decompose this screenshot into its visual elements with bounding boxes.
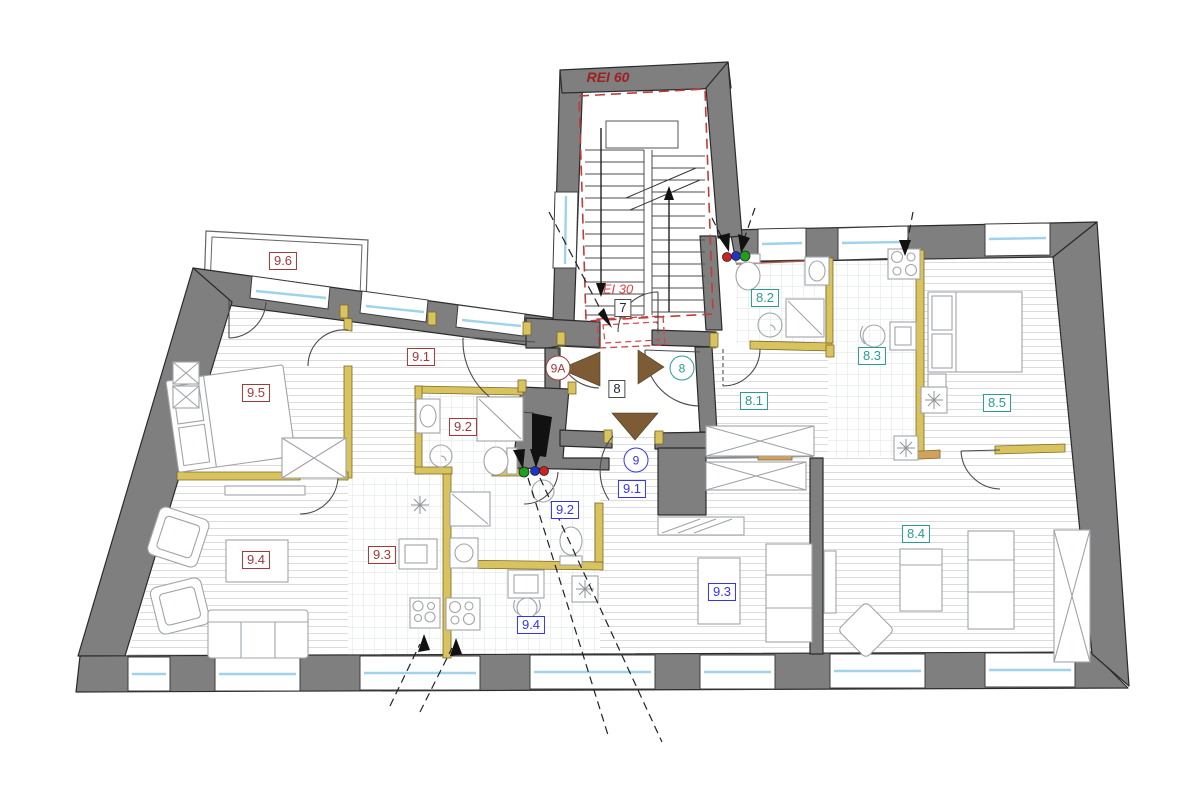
room-label-b91: 9.1 [618, 480, 646, 498]
room-label-r92: 9.2 [449, 418, 477, 436]
room-label-t82: 8.2 [751, 289, 779, 307]
entrance-label-c9: 9 [624, 448, 649, 473]
room-labels-overlay: REI 60EI 30789A899.69.59.19.29.39.48.28.… [0, 0, 1200, 800]
room-label-t83: 8.3 [858, 347, 886, 365]
entrance-label-c8: 8 [670, 356, 695, 381]
room-label-b92: 9.2 [551, 501, 579, 519]
room-label-t85: 8.5 [983, 394, 1011, 412]
room-label-r93: 9.3 [368, 546, 396, 564]
room-label-rei60: REI 60 [587, 70, 630, 84]
floor-plan: REI 60EI 30789A899.69.59.19.29.39.48.28.… [0, 0, 1200, 800]
room-label-b93: 9.3 [708, 583, 736, 601]
room-label-k8: 8 [608, 380, 625, 398]
room-label-r94: 9.4 [242, 551, 270, 569]
room-label-k7: 7 [614, 299, 631, 317]
room-label-b94: 9.4 [517, 616, 545, 634]
room-label-r91: 9.1 [407, 348, 435, 366]
entrance-label-c9a: 9A [546, 356, 571, 381]
room-label-ei30: EI 30 [603, 283, 633, 296]
room-label-t84: 8.4 [902, 525, 930, 543]
room-label-r96: 9.6 [269, 252, 297, 270]
room-label-t81: 8.1 [740, 392, 768, 410]
room-label-r95: 9.5 [242, 384, 270, 402]
